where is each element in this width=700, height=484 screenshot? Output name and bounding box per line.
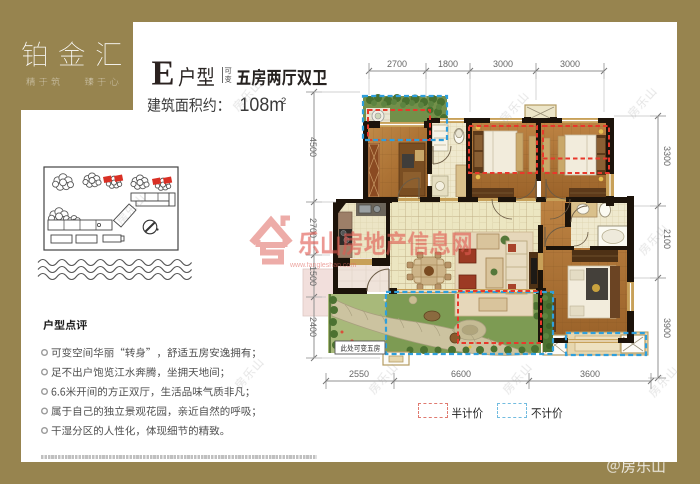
svg-text:1800: 1800 <box>438 59 458 69</box>
svg-text:2700: 2700 <box>387 59 407 69</box>
svg-text:www.fangleshan.com: www.fangleshan.com <box>289 262 356 269</box>
svg-text:3000: 3000 <box>493 59 513 69</box>
svg-text:2400: 2400 <box>308 317 318 337</box>
svg-text:3300: 3300 <box>662 146 672 166</box>
svg-text:6600: 6600 <box>451 369 471 379</box>
svg-text:E: E <box>152 55 175 93</box>
svg-text:2550: 2550 <box>349 369 369 379</box>
svg-text:2: 2 <box>281 96 286 107</box>
svg-text:3900: 3900 <box>662 318 672 338</box>
svg-text:3600: 3600 <box>580 369 600 379</box>
svg-text:4500: 4500 <box>308 137 318 157</box>
svg-text:3000: 3000 <box>560 59 580 69</box>
